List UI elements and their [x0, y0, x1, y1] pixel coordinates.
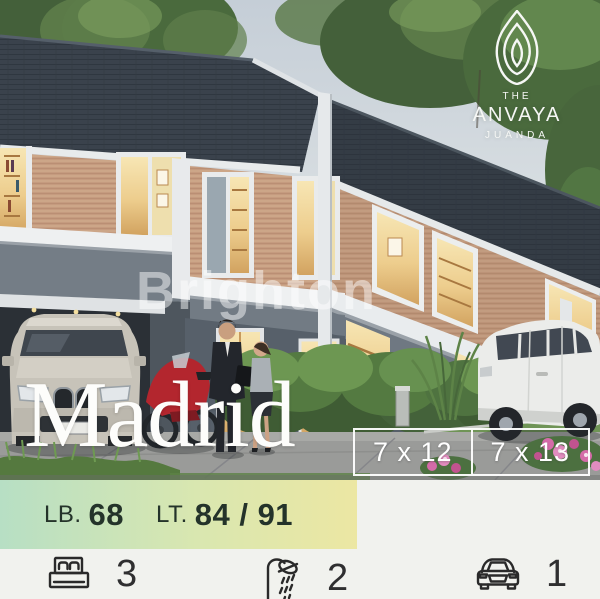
property-rendering-photo: THE ANVAYA JUANDA Brighton Madrid 7 x 12… — [0, 0, 600, 480]
logo-line-the: THE — [452, 91, 582, 102]
bed-icon — [46, 555, 92, 593]
house-type-title: Madrid — [24, 368, 295, 462]
bathroom-count: 2 — [327, 559, 348, 597]
anvaya-droplet-logo-icon — [494, 10, 540, 85]
brighton-watermark: Brighton — [136, 260, 377, 322]
bedroom-feature: 3 — [46, 555, 137, 593]
developer-logo: THE ANVAYA JUANDA — [452, 10, 582, 141]
bathroom-feature: 2 — [263, 555, 348, 599]
plot-dimension-1: 7 x 12 — [355, 430, 471, 474]
bollard-light — [395, 386, 410, 426]
carport-count: 1 — [546, 555, 567, 593]
plot-dimension-2: 7 x 13 — [473, 430, 589, 474]
bedroom-count: 3 — [116, 555, 137, 593]
land-area-label: LT. — [156, 501, 188, 529]
logo-line-juanda: JUANDA — [452, 130, 582, 141]
area-spec-strip: LB. 68 LT. 84 / 91 — [0, 480, 357, 549]
carport-feature: 1 — [474, 555, 567, 593]
shower-icon — [263, 555, 303, 599]
plot-dimensions-box: 7 x 12 7 x 13 — [353, 428, 590, 476]
car-icon — [474, 556, 522, 592]
land-area-value: 84 / 91 — [195, 497, 293, 533]
listing-poster: THE ANVAYA JUANDA Brighton Madrid 7 x 12… — [0, 0, 600, 599]
building-area-value: 68 — [89, 497, 124, 533]
building-area-label: LB. — [44, 501, 82, 529]
feature-stats-row: 3 2 — [0, 549, 600, 599]
logo-line-anvaya: ANVAYA — [452, 104, 582, 127]
